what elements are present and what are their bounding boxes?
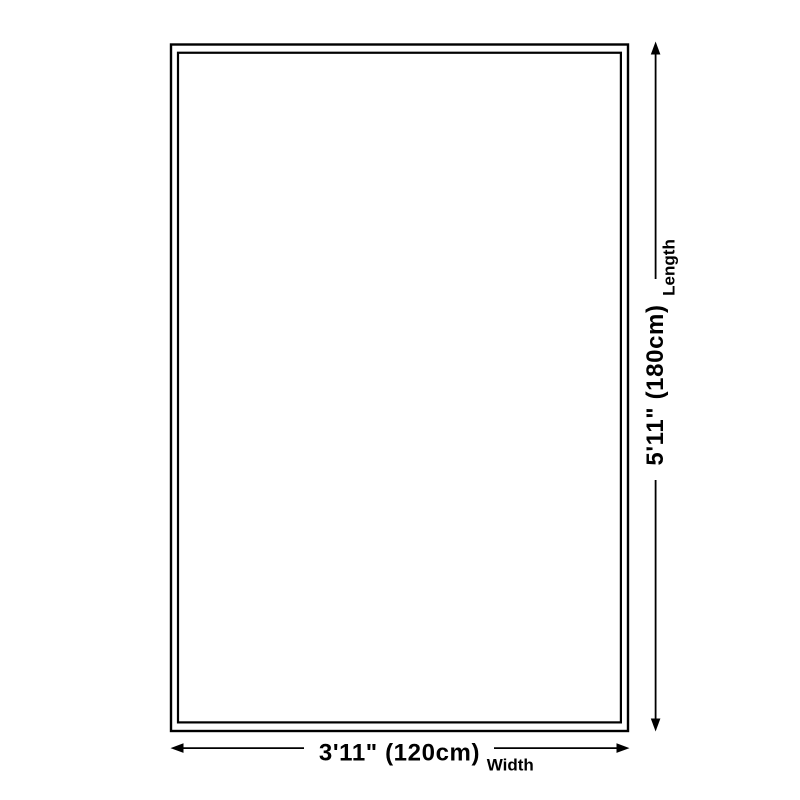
svg-text:Length: Length bbox=[660, 239, 679, 296]
svg-text:3'11" (120cm): 3'11" (120cm) bbox=[319, 740, 480, 767]
svg-text:Width: Width bbox=[487, 756, 534, 775]
svg-text:5'11" (180cm): 5'11" (180cm) bbox=[642, 304, 669, 465]
